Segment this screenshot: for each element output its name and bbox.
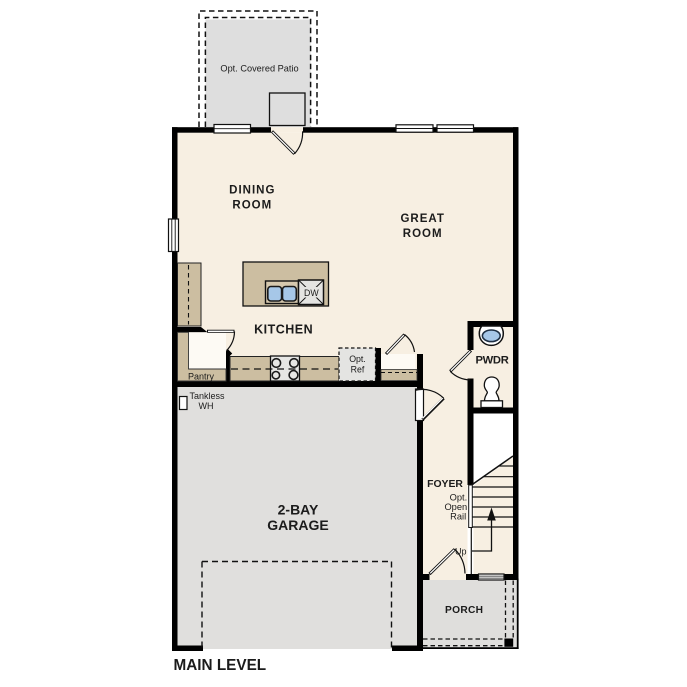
svg-text:WH: WH — [199, 401, 214, 411]
svg-text:Tankless: Tankless — [190, 391, 226, 401]
svg-text:Rail: Rail — [450, 512, 466, 522]
svg-text:Opt. Covered Patio: Opt. Covered Patio — [220, 64, 298, 74]
svg-text:2-BAY: 2-BAY — [278, 502, 319, 518]
svg-text:DW: DW — [304, 288, 319, 298]
svg-text:PWDR: PWDR — [476, 355, 509, 367]
svg-text:GARAGE: GARAGE — [267, 517, 328, 533]
svg-text:KITCHEN: KITCHEN — [254, 322, 313, 336]
svg-text:Opt.: Opt. — [450, 493, 468, 503]
svg-text:ROOM: ROOM — [232, 199, 272, 211]
svg-text:FOYER: FOYER — [427, 479, 463, 490]
svg-text:DINING: DINING — [229, 184, 275, 196]
svg-text:PORCH: PORCH — [445, 605, 483, 616]
svg-text:MAIN LEVEL: MAIN LEVEL — [174, 657, 267, 674]
svg-text:ROOM: ROOM — [403, 228, 443, 240]
svg-text:Opt.: Opt. — [349, 354, 366, 364]
svg-text:GREAT: GREAT — [400, 213, 444, 225]
svg-text:Open: Open — [444, 502, 467, 512]
svg-text:Ref: Ref — [351, 364, 365, 374]
svg-text:Pantry: Pantry — [188, 372, 215, 382]
